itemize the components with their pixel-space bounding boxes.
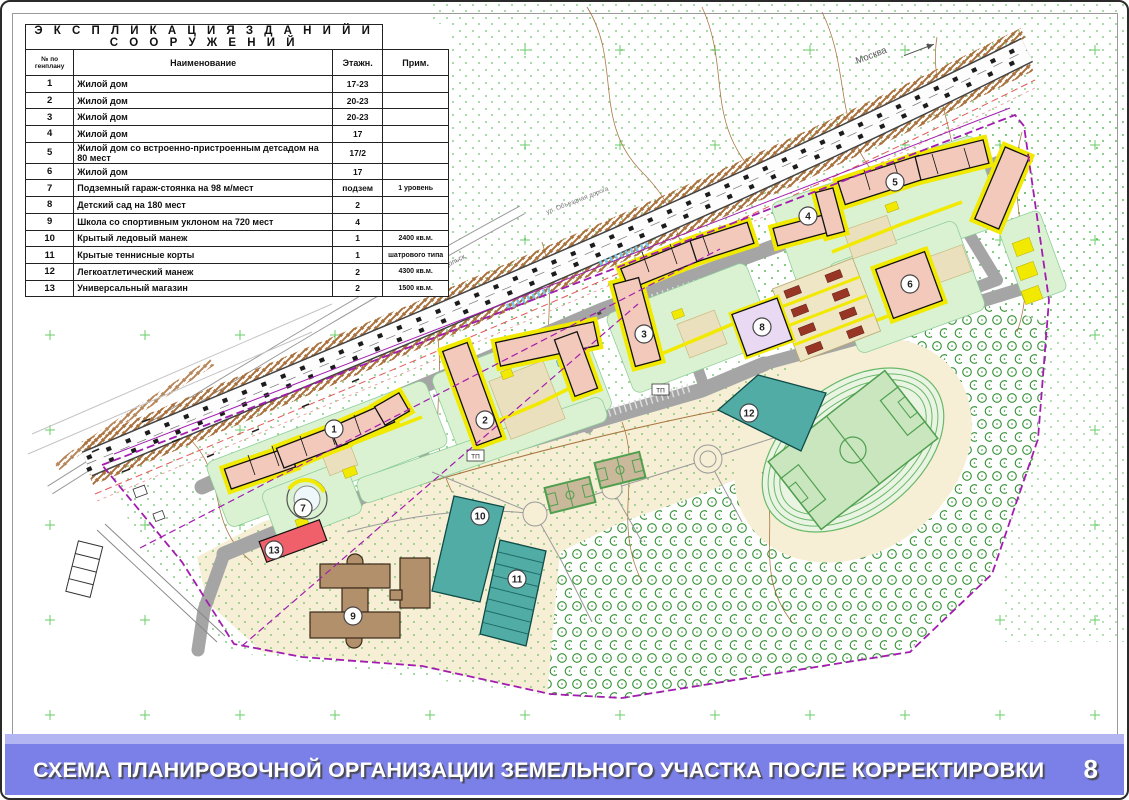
table-row: 1Жилой дом17-23 xyxy=(26,76,449,93)
table-cell: Жилой дом xyxy=(74,126,333,143)
col-header-num: № по генплану xyxy=(26,50,74,76)
table-row: 7Подземный гараж-стоянка на 98 м/местпод… xyxy=(26,180,449,197)
building-marker-8: 8 xyxy=(753,318,771,336)
building-marker-10: 10 xyxy=(471,507,489,525)
table-cell: 2 xyxy=(26,92,74,109)
building-marker-11: 11 xyxy=(508,570,526,588)
table-cell: 17/2 xyxy=(333,142,383,163)
col-header-name: Наименование xyxy=(74,50,333,76)
svg-text:11: 11 xyxy=(512,575,523,586)
table-cell xyxy=(383,76,449,93)
svg-text:9: 9 xyxy=(350,612,356,623)
table-cell: 1500 кв.м. xyxy=(383,280,449,297)
svg-text:13: 13 xyxy=(268,546,280,557)
table-row: 10Крытый ледовый манеж12400 кв.м. xyxy=(26,230,449,247)
table-cell: 13 xyxy=(26,280,74,297)
table-title: Э К С П Л И К А Ц И Я З Д А Н И Й И С О … xyxy=(26,25,383,50)
table-cell xyxy=(383,126,449,143)
building-marker-13: 13 xyxy=(265,541,283,559)
svg-text:2: 2 xyxy=(482,416,488,427)
col-header-note: Прим. xyxy=(383,50,449,76)
table-cell: Универсальный магазин xyxy=(74,280,333,297)
building-marker-2: 2 xyxy=(476,411,494,429)
svg-text:10: 10 xyxy=(474,512,486,523)
table-cell: Жилой дом xyxy=(74,109,333,126)
table-cell: Жилой дом xyxy=(74,92,333,109)
table-cell: Детский сад на 180 мест xyxy=(74,197,333,214)
svg-text:8: 8 xyxy=(759,323,765,334)
table-cell: 2 xyxy=(333,263,383,280)
table-cell xyxy=(383,213,449,230)
table-cell: 5 xyxy=(26,142,74,163)
table-cell xyxy=(383,92,449,109)
table-row: 8Детский сад на 180 мест2 xyxy=(26,197,449,214)
building-marker-7: 7 xyxy=(294,499,312,517)
table-cell: 17 xyxy=(333,163,383,180)
table-cell: подзем xyxy=(333,180,383,197)
table-cell: 1 уровень xyxy=(383,180,449,197)
svg-text:1: 1 xyxy=(331,425,337,436)
svg-text:7: 7 xyxy=(300,504,306,515)
table-cell xyxy=(383,109,449,126)
table-cell: Жилой дом xyxy=(74,76,333,93)
table-cell: Жилой дом со встроенно-пристроенным детс… xyxy=(74,142,333,163)
tp-label: ТП xyxy=(656,388,665,395)
slide: ТП ТП Москва ул. Объездная дорога Подоль… xyxy=(0,0,1129,800)
page-number: 8 xyxy=(1084,754,1098,785)
svg-text:3: 3 xyxy=(641,330,647,341)
table-row: 6Жилой дом17 xyxy=(26,163,449,180)
table-cell: Легкоатлетический манеж xyxy=(74,263,333,280)
svg-text:6: 6 xyxy=(907,280,913,291)
table-cell: 17 xyxy=(333,126,383,143)
table-cell: 10 xyxy=(26,230,74,247)
table-cell: 6 xyxy=(26,163,74,180)
table-cell: шатрового типа xyxy=(383,247,449,264)
svg-text:5: 5 xyxy=(892,178,898,189)
table-cell: 8 xyxy=(26,197,74,214)
footer: СХЕМА ПЛАНИРОВОЧНОЙ ОРГАНИЗАЦИИ ЗЕМЕЛЬНО… xyxy=(5,734,1124,795)
table-cell: Крытый ледовый манеж xyxy=(74,230,333,247)
table-cell: 2 xyxy=(333,280,383,297)
table-cell: Жилой дом xyxy=(74,163,333,180)
table-cell: 1 xyxy=(26,76,74,93)
table-cell xyxy=(383,142,449,163)
table-cell: 2 xyxy=(333,197,383,214)
table-cell: 20-23 xyxy=(333,109,383,126)
explication-table: Э К С П Л И К А Ц И Я З Д А Н И Й И С О … xyxy=(25,24,449,297)
table-cell: 1 xyxy=(333,247,383,264)
table-cell xyxy=(383,197,449,214)
table-cell: 17-23 xyxy=(333,76,383,93)
svg-text:4: 4 xyxy=(805,212,811,223)
building-marker-9: 9 xyxy=(344,607,362,625)
table-cell: 20-23 xyxy=(333,92,383,109)
table-cell: 2400 кв.м. xyxy=(383,230,449,247)
table-cell: 4300 кв.м. xyxy=(383,263,449,280)
table-cell: 1 xyxy=(333,230,383,247)
building-marker-6: 6 xyxy=(901,275,919,293)
building-marker-3: 3 xyxy=(635,325,653,343)
table-cell xyxy=(383,163,449,180)
building-marker-5: 5 xyxy=(886,173,904,191)
table-cell: 4 xyxy=(26,126,74,143)
building-marker-4: 4 xyxy=(799,207,817,225)
table-cell: 9 xyxy=(26,213,74,230)
table-row: 5Жилой дом со встроенно-пристроенным дет… xyxy=(26,142,449,163)
table-row: 11Крытые теннисные корты1шатрового типа xyxy=(26,247,449,264)
svg-text:12: 12 xyxy=(743,409,755,420)
table-row: 12Легкоатлетический манеж24300 кв.м. xyxy=(26,263,449,280)
table-row: 3Жилой дом20-23 xyxy=(26,109,449,126)
table-row: 9Школа со спортивным уклоном на 720 мест… xyxy=(26,213,449,230)
building-marker-1: 1 xyxy=(325,420,343,438)
col-header-floors: Этажн. xyxy=(333,50,383,76)
tp-label: ТП xyxy=(471,454,480,461)
table-cell: 4 xyxy=(333,213,383,230)
table-cell: Школа со спортивным уклоном на 720 мест xyxy=(74,213,333,230)
footer-accent-strip xyxy=(5,734,1124,744)
footer-title: СХЕМА ПЛАНИРОВОЧНОЙ ОРГАНИЗАЦИИ ЗЕМЕЛЬНО… xyxy=(33,758,1044,783)
table-row: 4Жилой дом17 xyxy=(26,126,449,143)
table-cell: 12 xyxy=(26,263,74,280)
table-cell: Подземный гараж-стоянка на 98 м/мест xyxy=(74,180,333,197)
table-cell: 3 xyxy=(26,109,74,126)
table-row: 13Универсальный магазин21500 кв.м. xyxy=(26,280,449,297)
table-row: 2Жилой дом20-23 xyxy=(26,92,449,109)
table-cell: Крытые теннисные корты xyxy=(74,247,333,264)
table-cell: 11 xyxy=(26,247,74,264)
table-cell: 7 xyxy=(26,180,74,197)
building-marker-12: 12 xyxy=(740,404,758,422)
